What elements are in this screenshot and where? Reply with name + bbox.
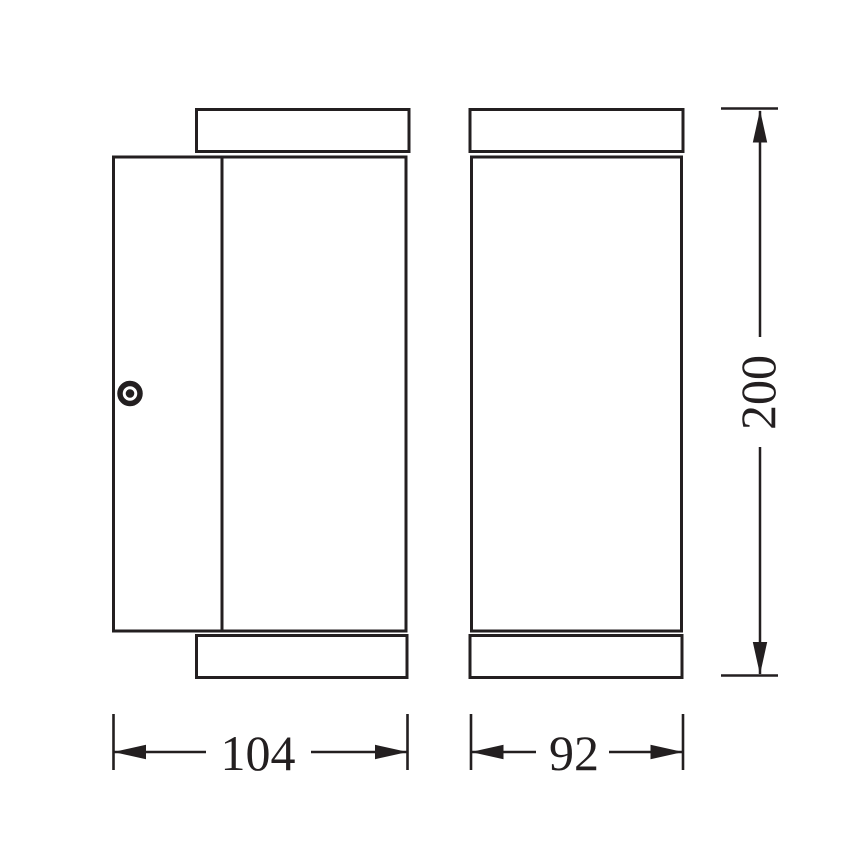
side-top-cap	[197, 110, 410, 152]
side-bottom-cap	[197, 636, 408, 678]
drawing-canvas: 104 92 200	[0, 0, 868, 868]
front-body	[472, 157, 682, 631]
screw-center-dot	[126, 389, 135, 398]
side-body	[222, 157, 406, 631]
dimension-label-overall-height: 200	[730, 355, 786, 430]
arrow-down-icon	[753, 642, 767, 675]
front-top-cap	[470, 110, 683, 152]
arrow-left-icon	[114, 745, 147, 759]
arrow-up-icon	[753, 110, 767, 143]
screw-icon	[120, 384, 140, 404]
front-view	[470, 110, 683, 678]
front-bottom-cap	[470, 636, 682, 678]
dimension-label-side-width: 104	[221, 725, 296, 781]
dimension-label-front-width: 92	[549, 725, 599, 781]
dimension-side-width: 104	[114, 714, 408, 781]
arrow-right-icon	[651, 745, 684, 759]
arrow-left-icon	[471, 745, 504, 759]
dimension-overall-height: 200	[721, 109, 786, 676]
arrow-right-icon	[375, 745, 408, 759]
side-view	[114, 110, 410, 678]
technical-drawing: 104 92 200	[0, 0, 868, 868]
dimension-front-width: 92	[471, 714, 683, 781]
